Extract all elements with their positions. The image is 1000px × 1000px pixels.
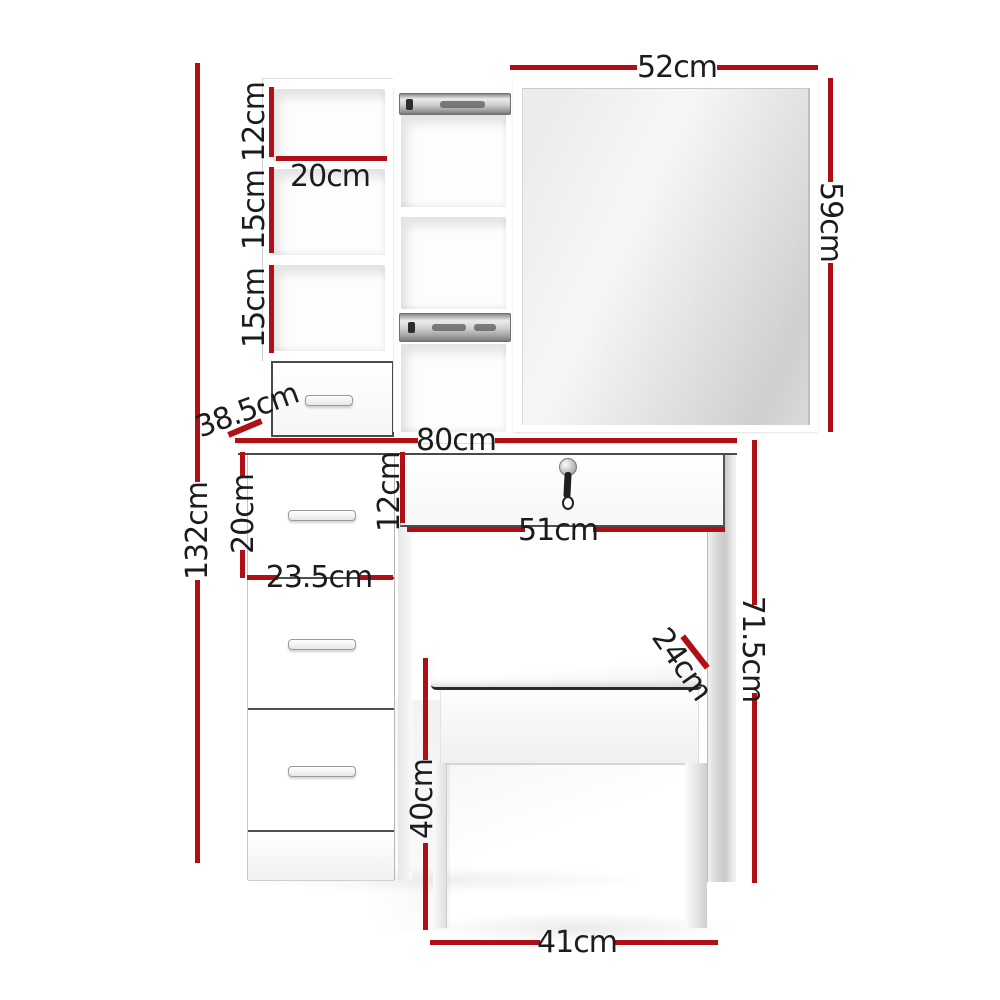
pedestal-drawer	[248, 710, 394, 832]
pedestal-drawer	[248, 579, 394, 710]
dim-label-center-drawer-width: 51cm	[503, 514, 613, 546]
shelf-opening	[273, 265, 385, 351]
dim-label-table-height: 71.5cm	[737, 594, 769, 704]
dim-label-center-drawer-height: 12cm	[373, 437, 405, 547]
dim-label-stool-width: 41cm	[522, 926, 632, 958]
mirror-frame	[513, 75, 818, 432]
key-ring-icon	[562, 496, 574, 510]
shelf-opening	[401, 217, 506, 309]
drawer-slide-rail	[399, 93, 511, 115]
drawer-handle	[288, 510, 356, 521]
mirror-glass	[522, 88, 810, 425]
rail-detail	[440, 101, 485, 108]
pedestal-base	[248, 832, 394, 881]
stool-box	[440, 690, 699, 765]
dim-label-side-drawer: 20cm	[227, 459, 259, 569]
dim-label-cubby-mid: 15cm	[238, 155, 270, 265]
stool-right-leg	[685, 763, 707, 928]
rail-detail	[474, 324, 496, 331]
drawer-handle	[288, 766, 356, 777]
key-icon	[563, 472, 571, 498]
shelf-opening	[401, 344, 506, 432]
dim-line-table-height	[752, 693, 757, 883]
dim-line-table-width	[495, 438, 737, 443]
dim-line-mirror-height	[828, 263, 833, 432]
left-shelf-tower	[262, 78, 393, 361]
dim-line-mirror-width	[717, 65, 818, 70]
rail-detail	[408, 322, 415, 333]
rail-detail	[406, 99, 413, 110]
drawer-handle	[305, 395, 353, 406]
shelf-opening	[401, 115, 506, 207]
middle-shelf-tower	[393, 88, 511, 432]
drawer-handle	[288, 639, 356, 650]
dim-label-table-width: 80cm	[401, 424, 511, 456]
shelf-opening	[273, 89, 385, 161]
dim-line-table-height	[752, 440, 757, 605]
dim-label-mirror-width: 52cm	[622, 51, 732, 83]
dim-line-total-height	[195, 580, 200, 863]
drawer-slide-rail	[399, 313, 511, 342]
dim-line-stool-height	[423, 843, 428, 930]
dim-label-cubby-width: 20cm	[275, 160, 385, 192]
dim-label-pedestal-width: 23.5cm	[264, 561, 374, 593]
dim-label-total-height: 132cm	[181, 476, 213, 586]
dimension-diagram: 52cm 59cm 12cm 20cm 15cm 15cm 38.5cm 80c…	[0, 0, 1000, 1000]
rail-detail	[432, 324, 466, 331]
dim-label-mirror-height: 59cm	[815, 167, 847, 277]
dim-line-mirror-width	[510, 65, 637, 70]
dim-label-stool-height: 40cm	[406, 744, 438, 854]
dim-label-cubby-bottom: 15cm	[238, 253, 270, 363]
